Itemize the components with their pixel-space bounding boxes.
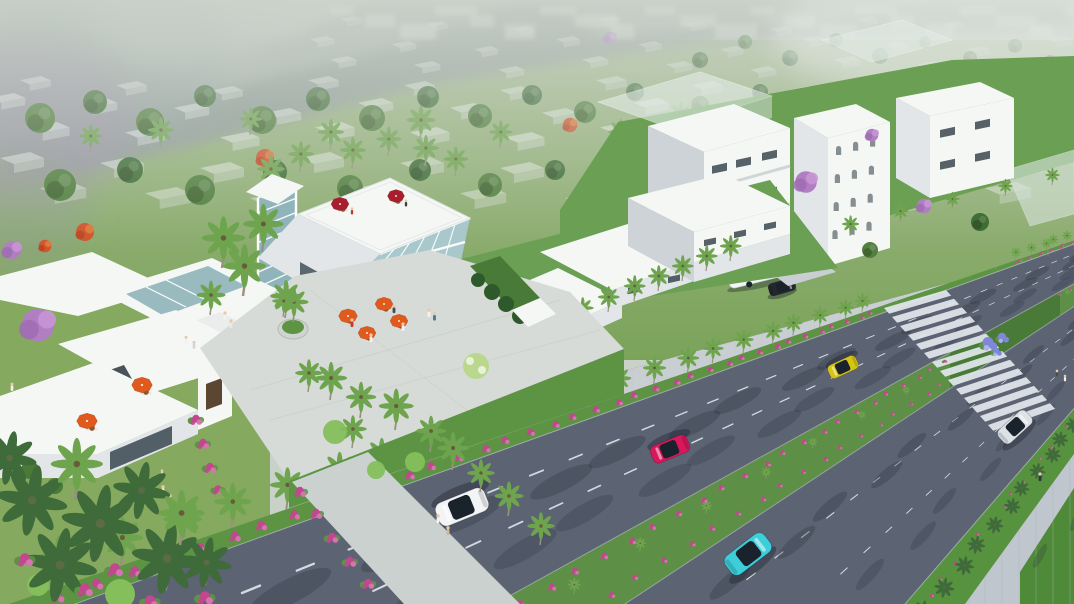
frangipani-tree xyxy=(463,353,489,379)
orange-umbrella-plaza-3 xyxy=(390,314,408,328)
orange-umbrella-plaza-4 xyxy=(358,326,376,340)
orange-umbrella-plaza-1 xyxy=(339,309,358,323)
orange-umbrella-terrace-2 xyxy=(77,413,98,429)
architectural-rendering: Hazy mountain, ghost master-plan blocks … xyxy=(0,0,1074,604)
scene-canvas: Hazy mountain, ghost master-plan blocks … xyxy=(0,0,1074,604)
red-umbrella-1 xyxy=(331,197,349,211)
red-umbrella-2 xyxy=(387,190,404,203)
villa-right-3story xyxy=(896,82,1014,198)
orange-umbrella-terrace-1 xyxy=(132,377,153,393)
orange-umbrella-plaza-2 xyxy=(375,297,393,311)
